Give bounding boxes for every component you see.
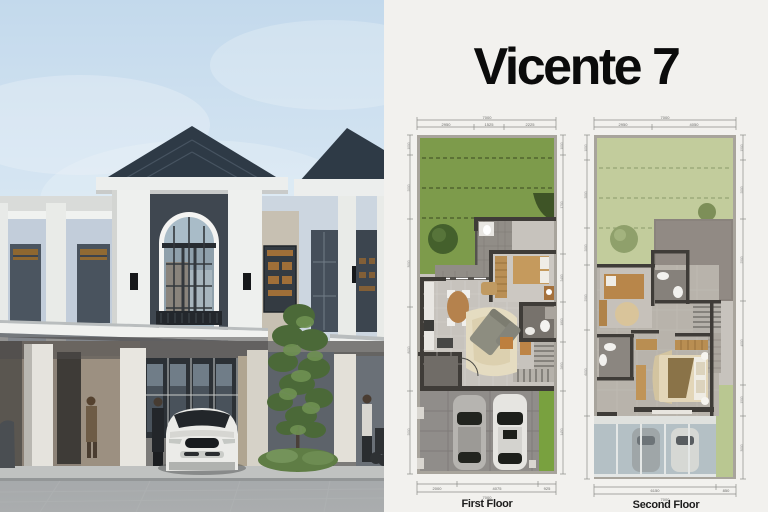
svg-text:850: 850 <box>723 488 730 493</box>
svg-text:925: 925 <box>544 486 551 491</box>
svg-text:7000: 7000 <box>483 115 493 120</box>
svg-text:2000: 2000 <box>584 244 588 251</box>
svg-text:1525: 1525 <box>485 122 495 127</box>
svg-text:2000: 2000 <box>584 191 588 198</box>
svg-text:2000: 2000 <box>433 486 443 491</box>
svg-text:1000: 1000 <box>560 142 564 149</box>
svg-text:6150: 6150 <box>651 488 661 493</box>
svg-text:2400: 2400 <box>560 274 564 281</box>
svg-text:1500: 1500 <box>740 144 744 151</box>
svg-text:1700: 1700 <box>560 201 564 208</box>
svg-text:2000: 2000 <box>407 184 411 191</box>
svg-text:2225: 2225 <box>526 122 536 127</box>
svg-text:1500: 1500 <box>740 396 744 403</box>
svg-text:2950: 2950 <box>619 122 629 127</box>
svg-text:3000: 3000 <box>407 260 411 267</box>
svg-text:2500: 2500 <box>584 294 588 301</box>
svg-text:3000: 3000 <box>740 444 744 451</box>
svg-text:6000: 6000 <box>584 368 588 375</box>
svg-text:First Floor: First Floor <box>461 498 513 510</box>
svg-text:4050: 4050 <box>690 122 700 127</box>
svg-text:1000: 1000 <box>407 142 411 149</box>
svg-text:4075: 4075 <box>493 486 503 491</box>
svg-text:2500: 2500 <box>740 256 744 263</box>
svg-text:8000: 8000 <box>407 346 411 353</box>
svg-text:1450: 1450 <box>560 428 564 435</box>
svg-text:7000: 7000 <box>661 115 671 120</box>
svg-text:4000: 4000 <box>740 339 744 346</box>
svg-text:2000: 2000 <box>407 428 411 435</box>
svg-text:2850: 2850 <box>560 362 564 369</box>
svg-text:2000: 2000 <box>740 186 744 193</box>
svg-text:Second Floor: Second Floor <box>633 499 701 511</box>
svg-text:2950: 2950 <box>442 122 452 127</box>
svg-text:1800: 1800 <box>560 318 564 325</box>
svg-text:1000: 1000 <box>584 144 588 151</box>
